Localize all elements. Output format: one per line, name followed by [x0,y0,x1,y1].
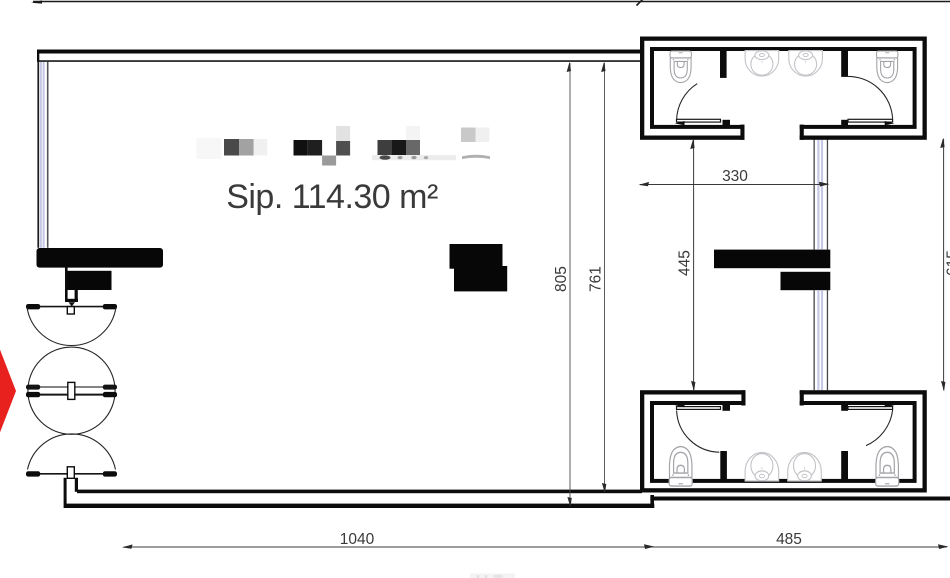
svg-text:485: 485 [776,531,802,548]
svg-text:761: 761 [588,266,605,292]
svg-text:805: 805 [553,266,570,292]
svg-text:1040: 1040 [340,531,375,548]
svg-text:Sip. 114.30 m²: Sip. 114.30 m² [226,178,438,216]
svg-text:330: 330 [722,168,748,185]
svg-text:615: 615 [945,250,950,276]
svg-text:445: 445 [677,250,694,276]
